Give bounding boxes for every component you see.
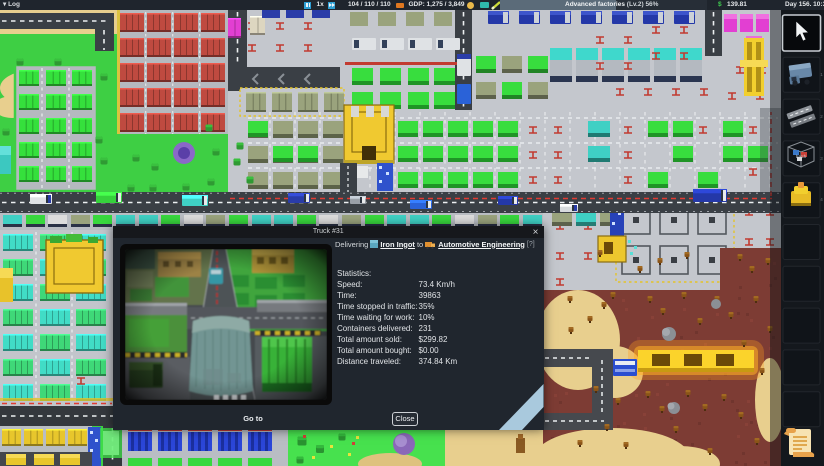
svg-text:batch: batch [796, 154, 807, 159]
